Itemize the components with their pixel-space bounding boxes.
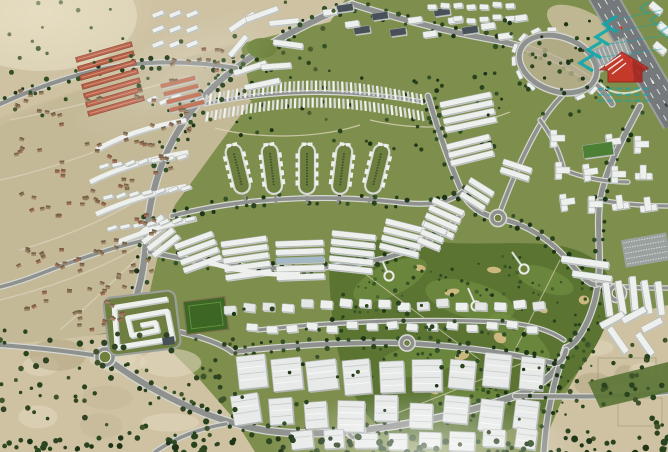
- tree: [581, 287, 584, 290]
- tree: [551, 411, 555, 415]
- townhouse-strip: [306, 81, 308, 92]
- tree: [218, 385, 223, 390]
- tree: [643, 445, 650, 452]
- aerial-masterplan-image: [0, 0, 668, 452]
- tree: [307, 61, 311, 65]
- tree: [310, 15, 315, 20]
- tree: [604, 161, 608, 165]
- tree: [67, 376, 71, 380]
- tree: [270, 306, 275, 311]
- commercial-unit: [486, 322, 497, 330]
- tree: [487, 113, 490, 116]
- tree: [646, 387, 649, 390]
- commercial-unit: [266, 326, 278, 334]
- commercial-unit: [286, 325, 299, 334]
- tree: [598, 302, 601, 305]
- commercial-unit: [456, 303, 469, 313]
- commercial-unit: [513, 299, 527, 310]
- tree: [47, 87, 51, 91]
- tree: [552, 250, 556, 254]
- tree: [14, 378, 18, 382]
- pod-villa: [262, 181, 266, 187]
- tree: [14, 445, 18, 449]
- tree: [483, 72, 487, 76]
- pod-villa: [315, 180, 318, 185]
- commercial-unit: [532, 301, 545, 310]
- tree: [365, 304, 369, 308]
- tree: [605, 189, 609, 193]
- tree: [185, 206, 189, 210]
- townhouse-strip: [316, 98, 318, 108]
- tree: [568, 112, 573, 117]
- tree: [176, 138, 180, 142]
- villa: [31, 252, 36, 256]
- tree: [164, 386, 167, 389]
- tree: [551, 287, 554, 290]
- tree: [603, 197, 608, 202]
- tree: [158, 140, 161, 143]
- tree: [586, 438, 592, 444]
- tree: [584, 297, 587, 300]
- tree: [483, 218, 487, 222]
- townhouse-strip: [332, 81, 335, 92]
- tree: [433, 97, 436, 100]
- tree: [553, 319, 556, 322]
- pod-villa: [302, 143, 307, 146]
- tree: [604, 441, 609, 446]
- tree: [222, 342, 227, 347]
- tree: [450, 176, 454, 180]
- tree: [179, 392, 183, 396]
- tree: [575, 399, 579, 403]
- tree: [77, 340, 83, 346]
- tree: [413, 265, 417, 269]
- desert-mottle: [18, 405, 57, 428]
- tree: [518, 280, 522, 284]
- pod-villa: [280, 170, 284, 176]
- tree: [249, 116, 252, 119]
- tree: [660, 423, 664, 427]
- villa-roof: [130, 179, 135, 181]
- tree: [203, 418, 209, 424]
- tree: [46, 417, 50, 421]
- tree: [560, 88, 563, 91]
- townhouse-strip: [285, 99, 288, 109]
- tree: [453, 319, 457, 323]
- tree: [201, 438, 205, 442]
- tree: [451, 191, 456, 196]
- tree: [630, 343, 634, 347]
- tree: [472, 75, 477, 80]
- tree: [581, 77, 585, 81]
- townhouse: [466, 18, 477, 25]
- tree: [500, 98, 503, 101]
- tree: [32, 410, 36, 414]
- tree: [31, 84, 34, 87]
- tree: [3, 341, 7, 345]
- roundabout-island: [99, 351, 111, 363]
- sports-field: [183, 297, 229, 335]
- tree: [82, 398, 87, 403]
- pod-villa: [263, 143, 268, 147]
- warehouse-roof: [379, 361, 405, 393]
- tree: [281, 348, 285, 352]
- tree: [616, 158, 619, 161]
- tree: [550, 236, 555, 241]
- tree: [534, 56, 537, 59]
- tree: [382, 269, 384, 271]
- oval-townhouse: [512, 56, 518, 66]
- tree: [336, 337, 340, 341]
- tree: [266, 438, 272, 444]
- tree: [560, 281, 562, 283]
- commercial-unit: [282, 304, 295, 313]
- villa: [60, 174, 65, 178]
- tree: [48, 447, 52, 451]
- tree: [384, 344, 388, 348]
- townhouse: [466, 18, 475, 24]
- pod-villa: [332, 152, 336, 158]
- tree: [205, 407, 210, 412]
- tree: [659, 383, 665, 389]
- townhouse-strip: [341, 82, 344, 93]
- tree: [585, 85, 589, 89]
- scene-svg: [0, 0, 668, 452]
- commercial-unit: [326, 325, 337, 333]
- tree: [509, 225, 512, 228]
- tree: [135, 370, 139, 374]
- tree: [445, 289, 447, 291]
- commercial-unit: [320, 300, 333, 309]
- tree: [161, 258, 165, 262]
- pod-villa: [270, 142, 275, 146]
- tree: [418, 336, 421, 339]
- tree: [239, 133, 243, 137]
- tree: [519, 219, 523, 223]
- tree: [358, 311, 361, 314]
- tree: [528, 394, 532, 398]
- tree: [325, 346, 330, 351]
- townhouse-strip: [337, 81, 340, 92]
- warehouse: [482, 353, 513, 390]
- villa: [39, 91, 44, 95]
- townhouse-strip: [294, 98, 297, 108]
- tree: [261, 195, 265, 199]
- tree: [427, 75, 431, 79]
- tree: [504, 348, 508, 352]
- villa: [24, 307, 29, 311]
- tree: [557, 353, 560, 356]
- tree: [341, 293, 345, 297]
- commercial-unit: [475, 302, 488, 312]
- tree: [556, 301, 558, 303]
- tree: [538, 284, 541, 287]
- tree: [611, 440, 616, 445]
- tree: [41, 441, 48, 448]
- townhouse: [479, 4, 488, 9]
- tree: [578, 48, 582, 52]
- tree: [262, 203, 266, 207]
- tree: [438, 278, 441, 281]
- tree: [182, 397, 185, 400]
- tree: [574, 323, 577, 326]
- maze-wing: [551, 135, 565, 141]
- tree: [406, 14, 410, 18]
- tree: [640, 365, 644, 369]
- tree: [368, 141, 372, 145]
- tree: [208, 118, 212, 122]
- townhouse-strip: [289, 98, 292, 108]
- pod-stem-road: [338, 196, 339, 204]
- tree: [439, 365, 444, 370]
- tree: [174, 147, 177, 150]
- tree: [346, 202, 350, 206]
- tree: [117, 443, 123, 449]
- tree: [509, 266, 512, 269]
- townhouse-strip: [342, 99, 345, 109]
- tree: [101, 340, 107, 346]
- tree: [498, 107, 501, 110]
- pod-villa: [315, 171, 318, 176]
- maze-wing: [640, 165, 646, 179]
- villa: [134, 217, 139, 221]
- tree: [575, 36, 579, 40]
- commercial-unit: [494, 302, 508, 312]
- commercial-unit: [266, 326, 277, 333]
- tree: [136, 255, 139, 258]
- tree: [626, 138, 631, 143]
- tree: [194, 375, 199, 380]
- tree: [526, 87, 531, 92]
- tree: [356, 370, 360, 374]
- tree: [82, 384, 87, 389]
- tree: [317, 328, 321, 332]
- tree: [240, 395, 244, 399]
- warehouse-roof: [448, 359, 476, 390]
- tree: [245, 204, 249, 208]
- tree: [537, 293, 539, 295]
- tree: [40, 113, 44, 117]
- tree: [25, 405, 30, 410]
- pod-villa: [348, 181, 352, 187]
- tree: [421, 352, 424, 355]
- tree: [74, 398, 79, 403]
- villa-roof: [39, 91, 44, 93]
- tree: [503, 265, 506, 268]
- tree: [404, 22, 407, 25]
- villa: [105, 285, 110, 289]
- tree: [476, 388, 479, 391]
- commercial-unit: [386, 321, 399, 331]
- tree: [205, 426, 210, 431]
- tree: [590, 365, 592, 367]
- tree: [435, 137, 439, 141]
- villa: [42, 290, 47, 294]
- tree: [288, 371, 292, 375]
- warehouse: [271, 357, 305, 394]
- villa-roof: [77, 323, 82, 325]
- villa: [76, 257, 81, 261]
- tree: [112, 344, 118, 350]
- tree: [629, 382, 635, 388]
- townhouse: [479, 17, 488, 22]
- commercial-unit: [301, 299, 313, 308]
- commercial-unit: [306, 322, 319, 332]
- pod-loop: [299, 144, 315, 194]
- tree: [557, 69, 562, 74]
- tree: [502, 45, 505, 48]
- tree: [515, 347, 519, 351]
- tree: [586, 430, 590, 434]
- tree: [192, 433, 198, 439]
- tree: [539, 385, 543, 389]
- townhouse-strip: [298, 98, 301, 108]
- tree: [601, 402, 605, 406]
- commercial-unit: [532, 301, 546, 312]
- tree: [190, 400, 194, 404]
- tree: [2, 444, 7, 449]
- tree: [641, 111, 645, 115]
- tree: [241, 429, 244, 432]
- tree: [517, 81, 521, 85]
- tree: [360, 194, 364, 198]
- tree: [448, 338, 452, 342]
- tree: [559, 62, 562, 65]
- tree: [419, 147, 423, 151]
- tree: [187, 410, 192, 415]
- tree: [297, 22, 302, 27]
- villa: [77, 323, 82, 327]
- tree: [232, 437, 236, 441]
- tree: [592, 238, 597, 243]
- commercial-unit: [366, 323, 378, 331]
- tree: [260, 341, 263, 344]
- tree: [427, 357, 430, 360]
- tree: [200, 211, 205, 216]
- tree: [192, 123, 196, 127]
- villa-roof: [149, 232, 154, 234]
- tree: [372, 201, 377, 206]
- tree: [385, 118, 389, 122]
- tree: [228, 424, 232, 428]
- tree: [296, 347, 300, 351]
- tree: [582, 350, 585, 353]
- pod-villa: [315, 153, 318, 158]
- tree: [375, 309, 379, 313]
- spiral-dark-block: [162, 336, 175, 345]
- tree: [47, 338, 52, 343]
- townhouse-strip: [310, 81, 312, 92]
- oval-townhouse: [512, 57, 516, 66]
- tree: [593, 448, 596, 451]
- tree: [164, 168, 169, 173]
- townhouse-strip: [333, 98, 336, 108]
- villa: [122, 250, 127, 254]
- tree: [365, 140, 368, 143]
- tree: [339, 329, 343, 333]
- pod-villa: [315, 162, 318, 167]
- tree: [502, 332, 506, 336]
- tree: [406, 282, 409, 285]
- tree: [631, 105, 635, 109]
- commercial-unit: [326, 325, 339, 334]
- tree: [366, 2, 370, 6]
- tree: [137, 386, 142, 391]
- tree: [566, 266, 569, 269]
- tree: [481, 388, 485, 392]
- tree: [536, 236, 540, 240]
- townhouse: [492, 14, 502, 20]
- tree: [231, 337, 235, 341]
- tree: [367, 311, 370, 314]
- tree: [538, 366, 541, 369]
- tree: [54, 394, 59, 399]
- tree: [223, 197, 228, 202]
- tree: [544, 396, 548, 400]
- tree: [611, 361, 615, 365]
- tree: [18, 438, 23, 443]
- tree: [484, 30, 489, 35]
- tree: [450, 267, 453, 270]
- tree: [475, 290, 479, 294]
- townhouse-strip: [319, 81, 321, 92]
- tree: [598, 315, 600, 317]
- tree: [121, 344, 127, 350]
- tree: [383, 252, 387, 256]
- tree: [429, 353, 432, 356]
- tree: [570, 59, 574, 63]
- commercial-unit: [486, 322, 499, 331]
- villa: [153, 171, 158, 175]
- tree: [540, 350, 543, 353]
- tree: [138, 243, 142, 247]
- tree: [466, 282, 470, 286]
- tree: [368, 281, 370, 283]
- commercial-unit: [526, 326, 537, 333]
- tree: [574, 47, 577, 50]
- tree: [442, 195, 447, 200]
- tree: [57, 438, 62, 443]
- desert-mottle: [82, 386, 133, 410]
- tree: [547, 384, 550, 387]
- commercial-unit: [306, 322, 318, 330]
- tree: [331, 9, 335, 13]
- tree: [172, 440, 177, 445]
- tree: [394, 205, 397, 208]
- pod-villa: [329, 179, 333, 185]
- townhouse-strip: [281, 99, 284, 109]
- tree: [296, 341, 300, 345]
- tree: [270, 350, 273, 353]
- pod-villa: [296, 153, 299, 158]
- tree: [582, 357, 587, 362]
- villa-roof: [77, 310, 82, 312]
- tree: [501, 255, 504, 258]
- tree: [235, 121, 238, 124]
- villa: [114, 238, 119, 242]
- townhouse-strip: [329, 98, 332, 108]
- tree: [210, 200, 213, 203]
- tree: [445, 276, 448, 279]
- maze-wing: [635, 141, 649, 147]
- commercial-unit: [494, 302, 506, 311]
- tree: [93, 349, 99, 355]
- tree: [621, 127, 625, 131]
- tree: [521, 332, 526, 337]
- townhouse-strip: [297, 81, 300, 92]
- villa-roof: [135, 217, 140, 219]
- tree: [574, 345, 578, 349]
